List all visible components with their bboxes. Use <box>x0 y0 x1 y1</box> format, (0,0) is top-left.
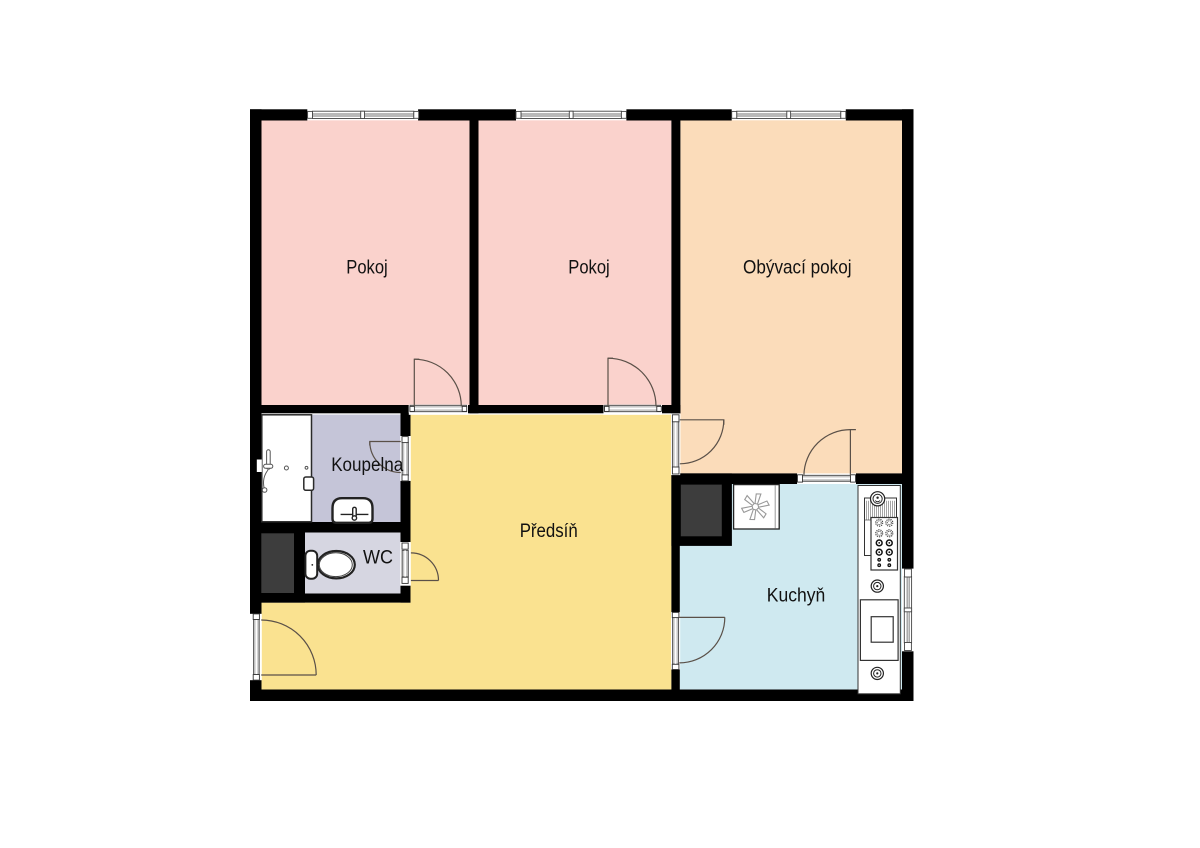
svg-text:Obývací pokoj: Obývací pokoj <box>743 257 852 279</box>
svg-text:Koupelna: Koupelna <box>331 454 403 476</box>
svg-text:Pokoj: Pokoj <box>568 256 610 278</box>
svg-text:WC: WC <box>363 547 393 569</box>
svg-text:Kuchyň: Kuchyň <box>767 584 826 606</box>
svg-text:Pokoj: Pokoj <box>346 256 388 278</box>
svg-text:Předsíň: Předsíň <box>520 520 578 542</box>
